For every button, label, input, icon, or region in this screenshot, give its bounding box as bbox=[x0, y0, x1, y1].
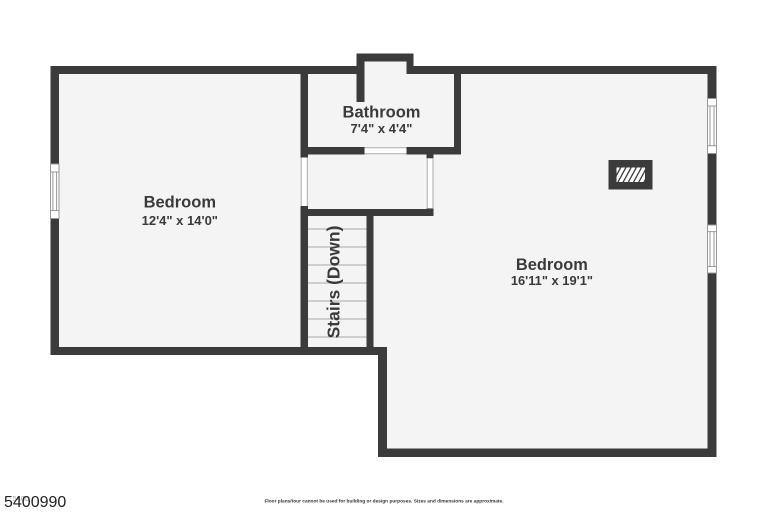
svg-text:Stairs (Down): Stairs (Down) bbox=[324, 226, 344, 339]
svg-text:5400990: 5400990 bbox=[4, 494, 66, 511]
svg-text:12'4" x 14'0": 12'4" x 14'0" bbox=[142, 213, 218, 228]
svg-text:Bedroom: Bedroom bbox=[144, 194, 216, 212]
svg-text:Bathroom: Bathroom bbox=[343, 104, 421, 122]
svg-text:Bedroom: Bedroom bbox=[516, 256, 588, 274]
svg-text:Floor plans/tour cannot be use: Floor plans/tour cannot be used for buil… bbox=[264, 499, 503, 505]
svg-text:7'4" x 4'4": 7'4" x 4'4" bbox=[351, 121, 413, 136]
svg-text:16'11" x 19'1": 16'11" x 19'1" bbox=[511, 273, 593, 288]
